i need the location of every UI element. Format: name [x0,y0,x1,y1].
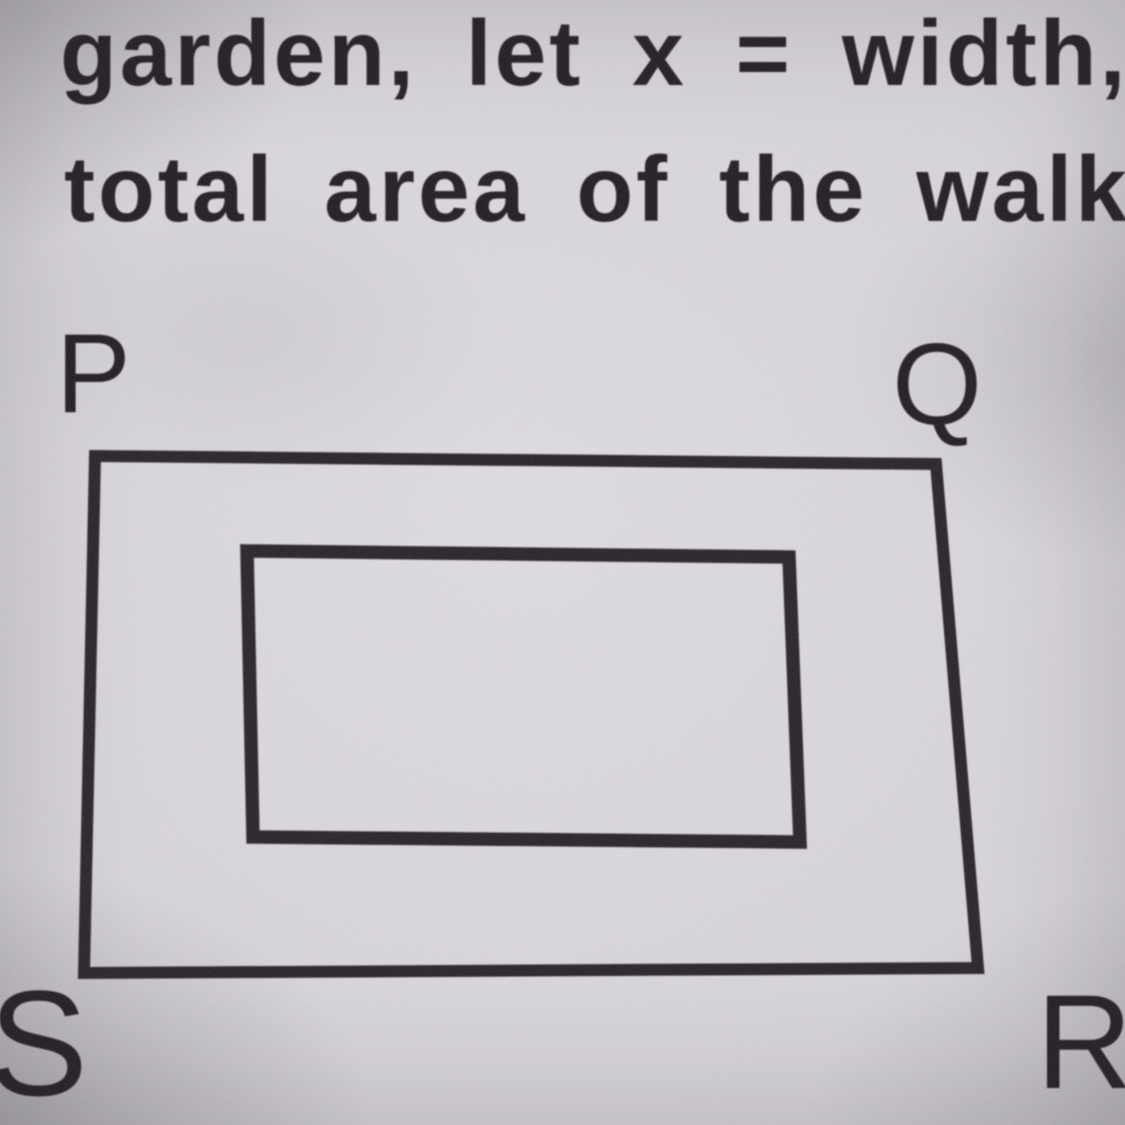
corner-label-q: Q [892,326,982,442]
inner-rectangle [247,551,800,842]
corner-label-s: S [0,968,88,1118]
printed-ink-layer: garden, let x = width, total area of the… [0,0,1125,1125]
photographed-worksheet-page: garden, let x = width, total area of the… [0,0,1125,1125]
nested-rectangles-diagram [0,0,1125,1125]
corner-label-p: P [56,318,131,430]
outer-rectangle [84,456,978,973]
corner-label-r: R [1036,976,1125,1110]
